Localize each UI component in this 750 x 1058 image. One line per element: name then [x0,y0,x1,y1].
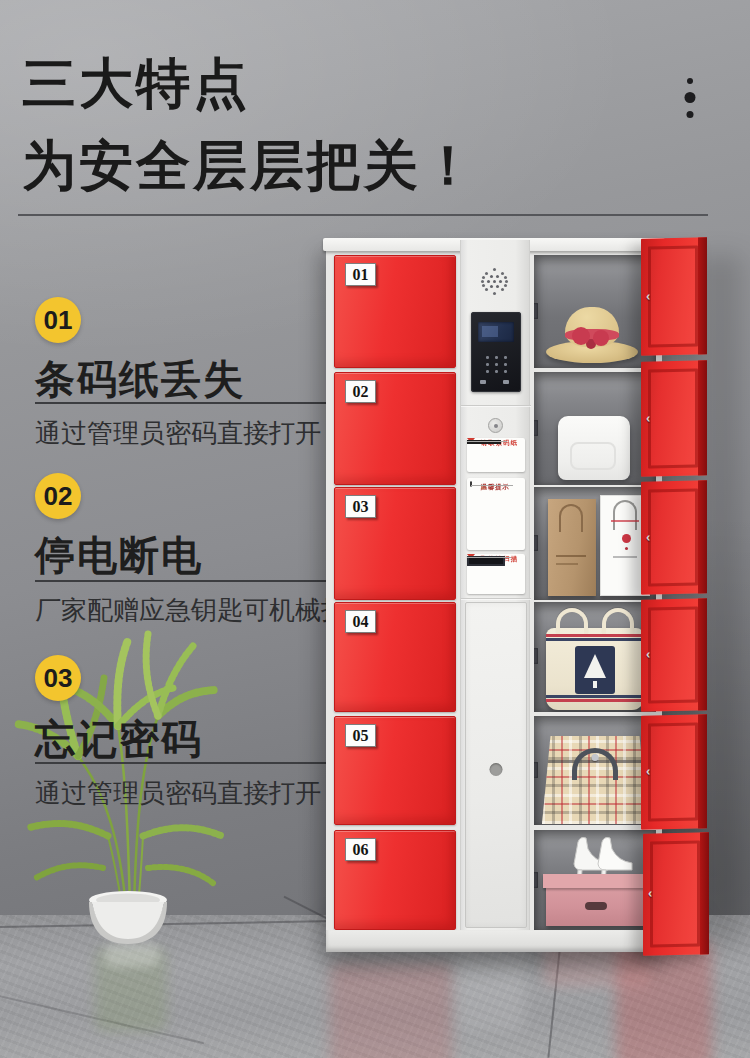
control-column: 请取条码纸 ⚠ 温馨提示 取物请扫描 [460,240,530,930]
door-latch-icon: ‹ [646,291,650,301]
latch-plate [534,872,538,888]
keyhole-lock [490,763,503,776]
door-latch-icon: ‹ [646,767,650,777]
latch-plate [534,303,538,319]
module-button [480,380,486,384]
door-number-tag: 04 [345,610,376,633]
page-title-line2: 为安全层层把关！ [22,138,478,192]
scan-to-pickup-label: 取物请扫描 [467,554,525,594]
feature-3-divider [35,762,328,764]
fine-print-line [467,441,507,443]
fine-print-line [467,557,511,559]
white-storage-box [558,416,630,480]
dot [685,92,696,103]
open-compartments-column [534,240,656,930]
feature-2-divider [35,580,328,582]
locker-door-01: 01 [334,255,456,368]
page-title-line1: 三大特点 [22,56,250,110]
latch-plate [534,648,538,664]
canvas-tote-bag [546,628,644,710]
compartment-2 [534,372,656,485]
speaker-grille-icon [493,280,496,283]
cabinet-base [326,930,662,952]
lcd-screen [478,322,514,342]
red-door-reflection [330,963,452,1058]
door-number-tag: 06 [345,838,376,861]
compartment-6 [534,830,656,930]
compartment-3 [534,487,656,600]
open-door-6: ‹ [643,832,709,955]
feature-1-divider [35,402,328,404]
fine-print-line [471,485,497,487]
straw-hat [546,307,638,365]
locker-door-02: 02 [334,372,456,485]
latch-plate [534,420,538,436]
door-latch-icon: ‹ [646,532,650,542]
feature-3-desc: 通过管理员密码直接打开 [35,776,321,811]
door-latch-icon: ‹ [648,888,652,898]
keyhole-lock [488,418,503,433]
notice-box: ⚠ 温馨提示 [470,481,472,487]
feature-1-number-badge: 01 [35,297,81,343]
locker-door-03: 03 [334,487,456,600]
door-number-tag: 02 [345,380,376,403]
box-lid [543,874,649,888]
latch-plate [534,762,538,778]
hat-bow [572,327,590,345]
tree-patch [575,646,615,694]
promo-poster: 三大特点 为安全层层把关！ [0,0,750,1058]
feature-1-title: 条码纸丢失 [35,352,245,407]
compartment-1 [534,255,656,368]
panel-seam [461,405,531,406]
open-door-3: ‹ [641,480,707,594]
box-handle-hole [585,902,607,910]
feature-1-desc: 通过管理员密码直接打开 [35,416,321,451]
control-module [471,312,521,392]
feature-2-number-badge: 02 [35,473,81,519]
barcode-dispenser-label: 请取条码纸 [467,438,525,472]
door-number-tag: 01 [345,263,376,286]
open-door-5: ‹ [641,714,707,829]
locker-door-06: 06 [334,830,456,930]
feature-3-number-badge: 03 [35,655,81,701]
door-latch-icon: ‹ [646,650,650,660]
locker-door-04: 04 [334,602,456,712]
module-button [503,380,509,384]
vertical-dots-icon [683,78,697,124]
title-divider [18,214,708,216]
panel-seam [461,598,531,599]
open-door-4: ‹ [641,598,707,711]
feature-2-title: 停电断电 [35,528,203,583]
compartment-4 [534,602,656,712]
warning-notice-label: ⚠ 温馨提示 [467,478,525,550]
center-service-door [465,602,527,928]
smart-locker-cabinet: 01 02 03 04 05 06 请取条码纸 [326,240,662,952]
dot [687,78,693,84]
open-door-1: ‹ [641,237,707,355]
door-latch-icon: ‹ [646,413,650,423]
pink-storage-box [546,876,646,926]
feature-2-desc: 厂家配赠应急钥匙可机械打开 [35,593,373,628]
door-number-tag: 03 [345,495,376,518]
feature-3-title: 忘记密码 [35,712,203,767]
latch-plate [534,535,538,551]
dot [687,111,694,118]
kraft-shopping-bag [548,499,596,596]
door-number-tag: 05 [345,724,376,747]
open-door-2: ‹ [641,360,707,476]
keypad [486,356,489,359]
locker-door-05: 05 [334,716,456,825]
